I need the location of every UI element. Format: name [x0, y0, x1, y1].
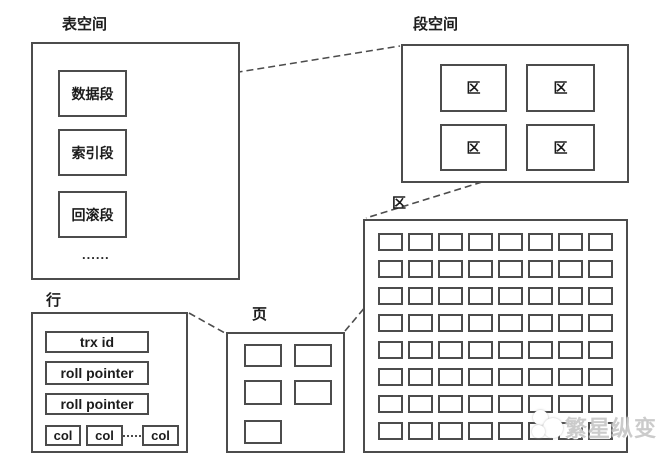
extent-page-cell [378, 368, 403, 386]
extent-page-cell [528, 314, 553, 332]
data-segment-box: 数据段 [58, 70, 127, 117]
extent-page-cell [588, 314, 613, 332]
extent-page-cell [498, 260, 523, 278]
extent-page-cell [408, 314, 433, 332]
extent-page-cell [528, 368, 553, 386]
page-block-4 [294, 380, 332, 405]
extent-page-cell [378, 395, 403, 413]
extent-page-cell [558, 341, 583, 359]
extent-page-cell [438, 395, 463, 413]
index-segment-box: 索引段 [58, 129, 127, 176]
extent-page-cell [408, 287, 433, 305]
extent-page-cell [588, 287, 613, 305]
extent-page-cell [438, 341, 463, 359]
extent-page-cell [558, 260, 583, 278]
extent-page-cell [588, 341, 613, 359]
row-label: 行 [46, 289, 61, 310]
extent-page-cell [588, 233, 613, 251]
extent-page-cell [378, 233, 403, 251]
extent-page-cell [588, 368, 613, 386]
extent-page-cell [468, 422, 493, 440]
extent-page-cell [408, 260, 433, 278]
extent-page-cell [468, 341, 493, 359]
extent-page-cell [468, 368, 493, 386]
extent-box-2: 区 [526, 64, 595, 112]
extent-page-cell [528, 341, 553, 359]
page-block-5 [244, 420, 282, 444]
extent-page-cell [408, 233, 433, 251]
segment-space-label: 段空间 [413, 13, 458, 34]
extent-page-cell [528, 260, 553, 278]
col-field-1: col [45, 425, 81, 446]
page-block-2 [294, 344, 332, 367]
extent-page-cell [588, 260, 613, 278]
rollback-segment-box: 回滚段 [58, 191, 127, 238]
col-ellipsis-dots [123, 435, 141, 437]
extent-label: 区 [392, 193, 406, 213]
extent-page-cell [408, 368, 433, 386]
extent-page-cell [558, 314, 583, 332]
extent-page-cell [438, 422, 463, 440]
extent-box-1: 区 [440, 64, 507, 112]
extent-page-cell [498, 314, 523, 332]
extent-page-cell [468, 260, 493, 278]
watermark: 繁星纵变 [531, 408, 657, 446]
extent-page-cell [558, 287, 583, 305]
extent-box-3: 区 [440, 124, 507, 171]
page-block-1 [244, 344, 282, 367]
watermark-text: 繁星纵变 [565, 411, 657, 443]
extent-page-cell [498, 233, 523, 251]
page-box [226, 332, 345, 453]
tablespace-label: 表空间 [62, 13, 107, 34]
extent-page-cell [378, 314, 403, 332]
watermark-logo-icon [531, 408, 565, 446]
extent-page-cell [378, 341, 403, 359]
roll-pointer-field-1: roll pointer [45, 361, 149, 385]
extent-page-cell [468, 233, 493, 251]
extent-page-cell [468, 287, 493, 305]
extent-page-cell [558, 233, 583, 251]
extent-page-cell [558, 368, 583, 386]
extent-page-cell [438, 287, 463, 305]
extent-page-cell [438, 260, 463, 278]
extent-page-cell [498, 395, 523, 413]
extent-page-cell [528, 233, 553, 251]
extent-page-cell [498, 368, 523, 386]
row-box: trx id roll pointer roll pointer col col… [31, 312, 188, 453]
extent-page-cell [378, 422, 403, 440]
col-field-3: col [142, 425, 179, 446]
tablespace-box: 数据段 索引段 回滚段 ...... [31, 42, 240, 280]
segment-space-box: 区 区 区 区 [401, 44, 629, 183]
extent-page-cell [408, 422, 433, 440]
extent-page-cell [498, 287, 523, 305]
extent-page-cell [498, 422, 523, 440]
extent-page-cell [468, 395, 493, 413]
storage-structure-diagram: 表空间 数据段 索引段 回滚段 ...... 段空间 区 区 区 区 区 行 t… [0, 0, 660, 459]
extent-page-cell [408, 395, 433, 413]
extent-page-cell [498, 341, 523, 359]
extent-page-cell [438, 368, 463, 386]
extent-page-cell [408, 341, 433, 359]
page-label: 页 [252, 303, 267, 324]
trx-id-field: trx id [45, 331, 149, 353]
extent-box-4: 区 [526, 124, 595, 171]
page-block-3 [244, 380, 282, 405]
extent-page-cell [378, 287, 403, 305]
col-field-2: col [86, 425, 123, 446]
extent-page-cell [468, 314, 493, 332]
extent-page-cell [528, 287, 553, 305]
extent-page-cell [378, 260, 403, 278]
extent-page-cell [438, 314, 463, 332]
tablespace-ellipsis: ...... [82, 247, 110, 262]
roll-pointer-field-2: roll pointer [45, 393, 149, 415]
extent-page-cell [438, 233, 463, 251]
